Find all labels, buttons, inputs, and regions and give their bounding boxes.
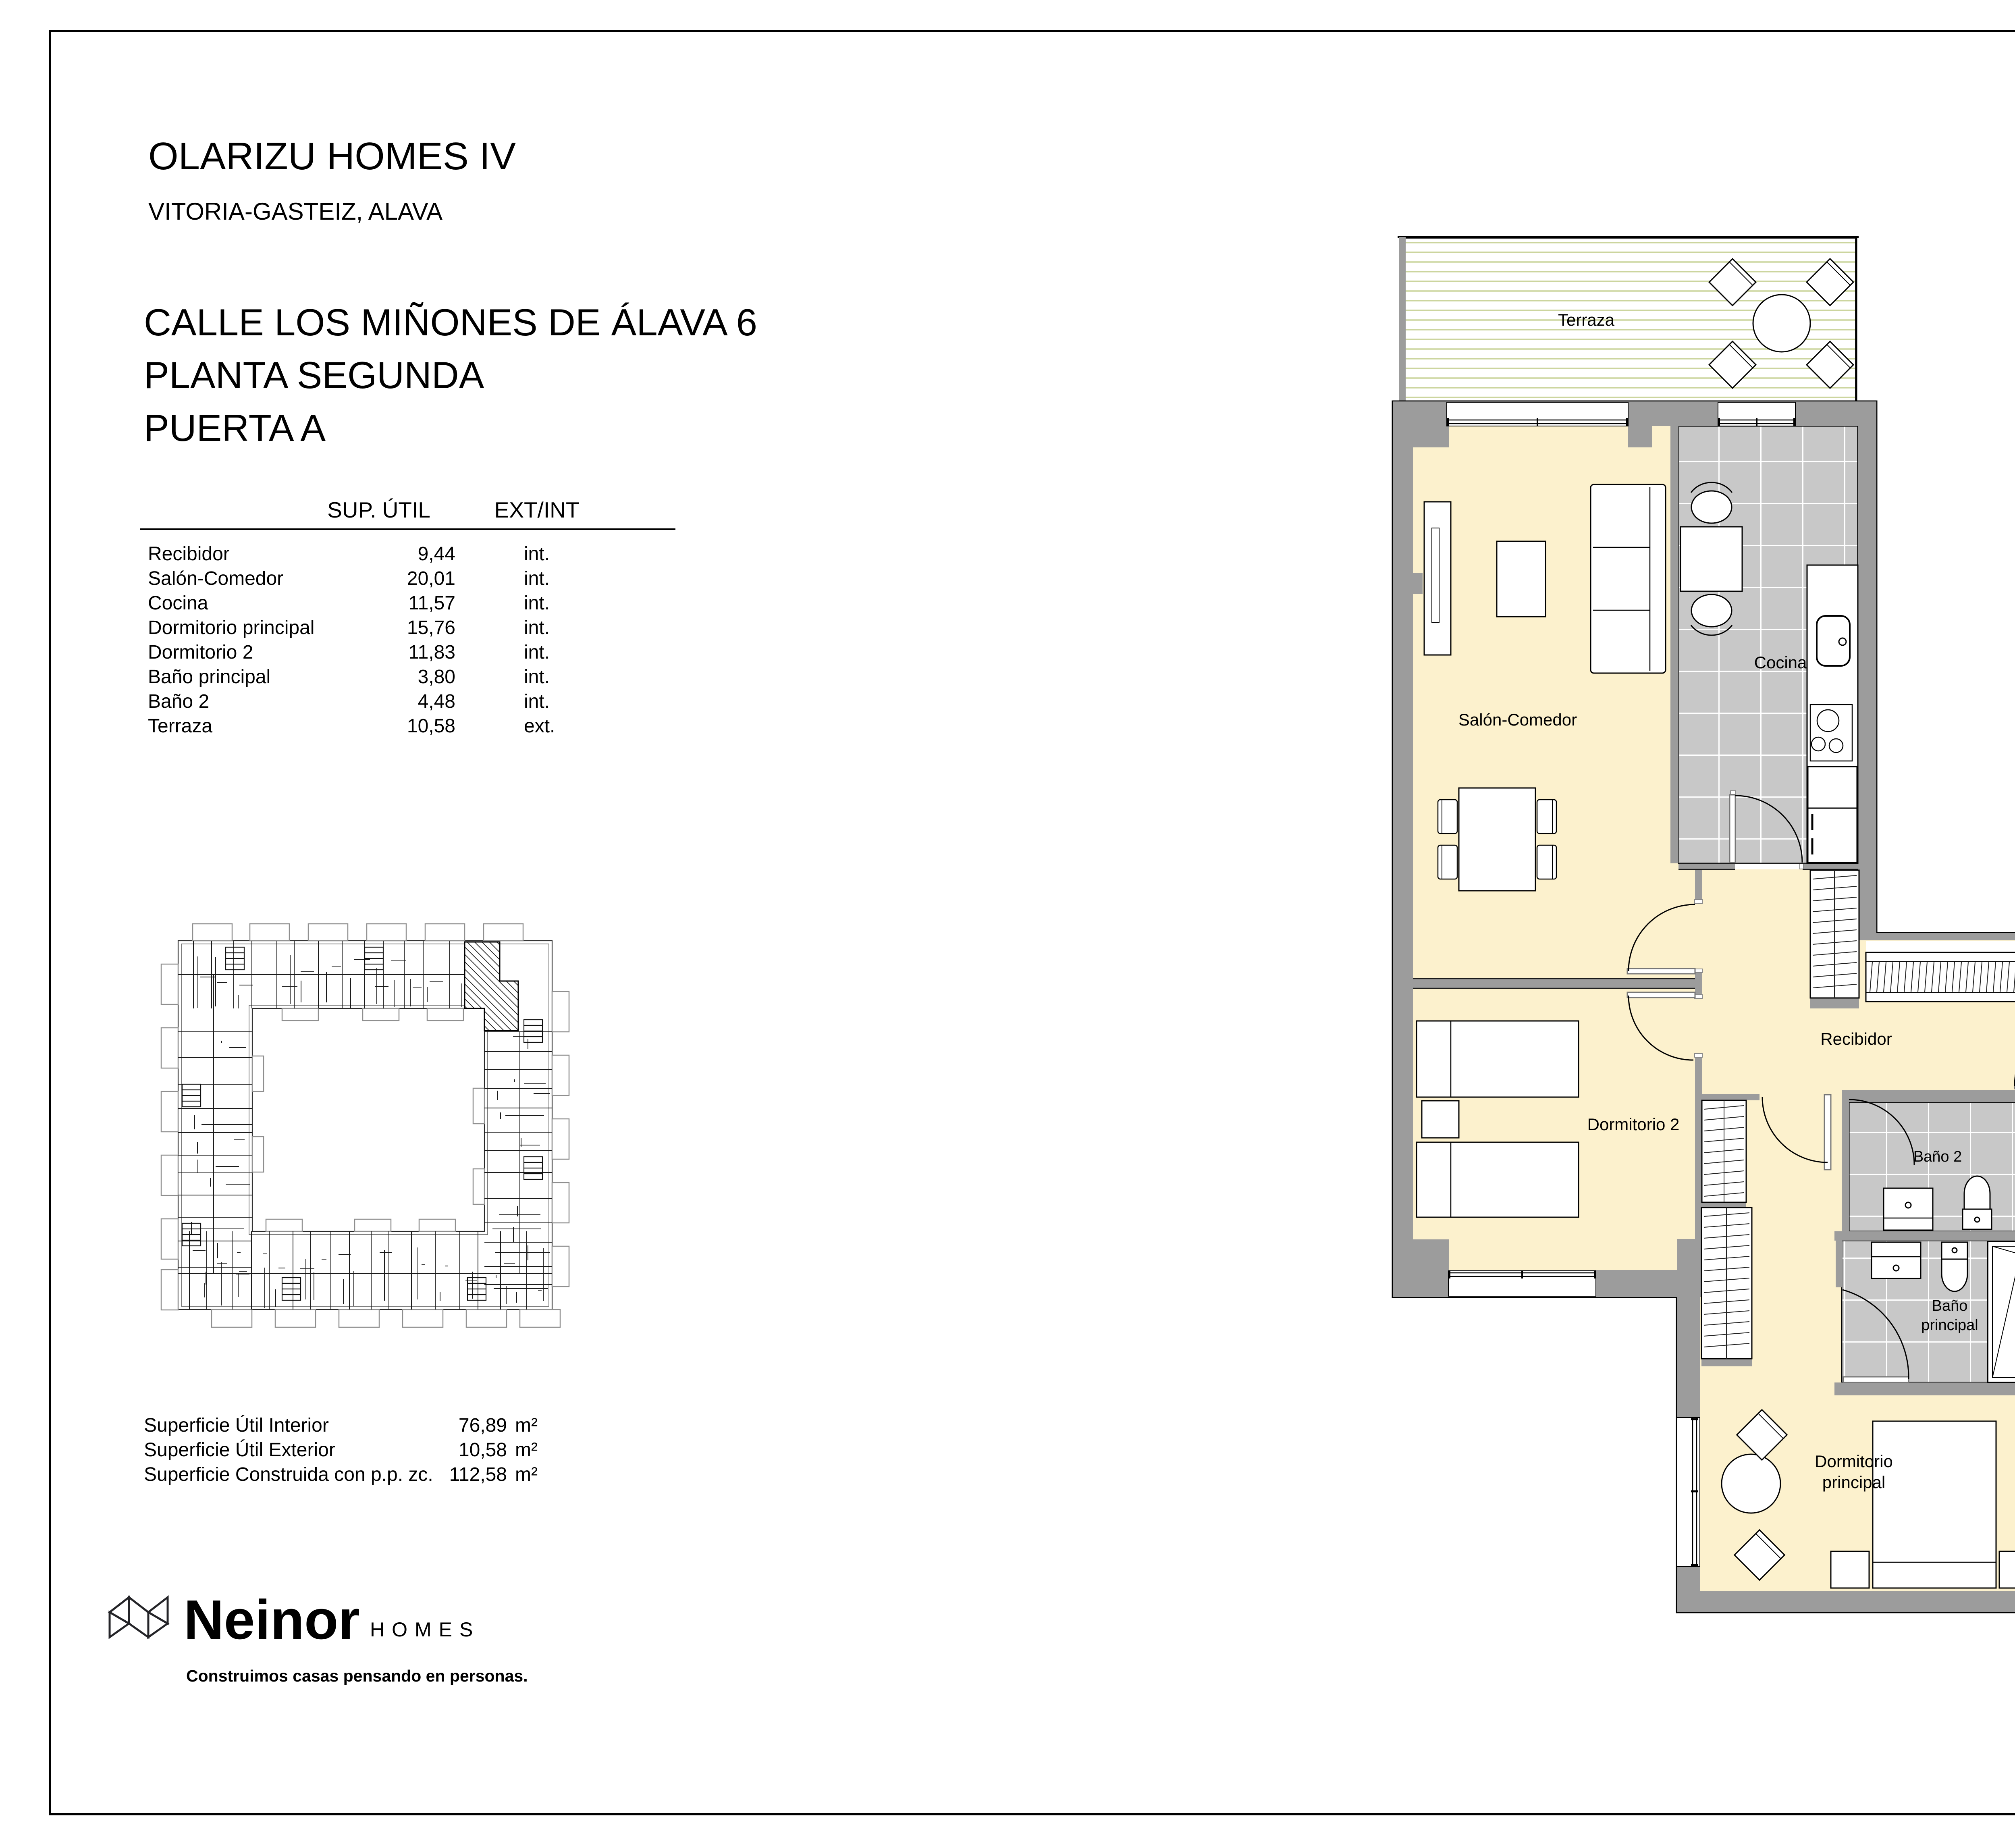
svg-text:Baño: Baño <box>1932 1297 1968 1314</box>
svg-text:Cocina: Cocina <box>1754 653 1807 672</box>
svg-text:Recibidor: Recibidor <box>1820 1029 1892 1048</box>
svg-text:VITORIA-GASTEIZ, ALAVA: VITORIA-GASTEIZ, ALAVA <box>148 198 442 225</box>
svg-text:int.: int. <box>524 666 550 688</box>
svg-text:Recibidor: Recibidor <box>148 543 230 565</box>
svg-text:int.: int. <box>524 642 550 663</box>
svg-text:Construimos casas pensando en: Construimos casas pensando en personas. <box>186 1667 528 1685</box>
svg-text:m²: m² <box>515 1464 538 1485</box>
svg-text:SUP. ÚTIL: SUP. ÚTIL <box>327 497 430 522</box>
svg-text:Dormitorio 2: Dormitorio 2 <box>1587 1115 1680 1134</box>
svg-text:PLANTA SEGUNDA: PLANTA SEGUNDA <box>144 354 484 396</box>
svg-text:Baño principal: Baño principal <box>148 666 270 688</box>
svg-text:int.: int. <box>524 617 550 638</box>
svg-text:Salón-Comedor: Salón-Comedor <box>148 568 283 589</box>
svg-text:Dormitorio 2: Dormitorio 2 <box>148 642 253 663</box>
svg-text:m²: m² <box>515 1415 538 1436</box>
svg-text:OLARIZU HOMES IV: OLARIZU HOMES IV <box>148 135 516 178</box>
svg-text:int.: int. <box>524 543 550 565</box>
svg-text:Cocina: Cocina <box>148 592 208 614</box>
svg-text:10,58: 10,58 <box>459 1439 507 1461</box>
svg-text:PUERTA A: PUERTA A <box>144 407 326 449</box>
svg-text:m²: m² <box>515 1439 538 1461</box>
svg-text:Baño 2: Baño 2 <box>1913 1148 1962 1165</box>
svg-text:Superficie Construida con p.p.: Superficie Construida con p.p. zc. <box>144 1464 433 1485</box>
svg-text:Salón-Comedor: Salón-Comedor <box>1458 710 1577 729</box>
svg-text:11,57: 11,57 <box>408 592 455 614</box>
svg-text:Neinor: Neinor <box>184 1589 360 1651</box>
svg-text:ext.: ext. <box>524 715 555 737</box>
svg-text:10,58: 10,58 <box>407 715 455 737</box>
svg-text:9,44: 9,44 <box>418 543 455 565</box>
svg-text:principal: principal <box>1921 1317 1978 1334</box>
svg-text:Superficie Útil Interior: Superficie Útil Interior <box>144 1414 329 1436</box>
svg-text:Terraza: Terraza <box>148 715 212 737</box>
svg-text:int.: int. <box>524 592 550 614</box>
svg-text:EXT/INT: EXT/INT <box>494 497 580 522</box>
svg-text:20,01: 20,01 <box>407 568 455 589</box>
svg-text:15,76: 15,76 <box>407 617 455 638</box>
svg-text:Baño 2: Baño 2 <box>148 691 209 712</box>
svg-text:principal: principal <box>1822 1473 1885 1492</box>
svg-text:11,83: 11,83 <box>408 642 455 663</box>
svg-text:Terraza: Terraza <box>1558 310 1615 329</box>
svg-text:Dormitorio principal: Dormitorio principal <box>148 617 314 638</box>
svg-text:Dormitorio: Dormitorio <box>1815 1452 1893 1471</box>
svg-text:HOMES: HOMES <box>370 1618 480 1641</box>
svg-text:4,48: 4,48 <box>418 691 455 712</box>
svg-text:76,89: 76,89 <box>459 1415 507 1436</box>
svg-text:CALLE LOS MIÑONES DE ÁLAVA 6: CALLE LOS MIÑONES DE ÁLAVA 6 <box>144 301 757 343</box>
svg-text:Superficie Útil Exterior: Superficie Útil Exterior <box>144 1439 335 1461</box>
svg-text:3,80: 3,80 <box>418 666 455 688</box>
svg-text:int.: int. <box>524 691 550 712</box>
svg-text:112,58: 112,58 <box>449 1464 507 1485</box>
svg-text:int.: int. <box>524 568 550 589</box>
